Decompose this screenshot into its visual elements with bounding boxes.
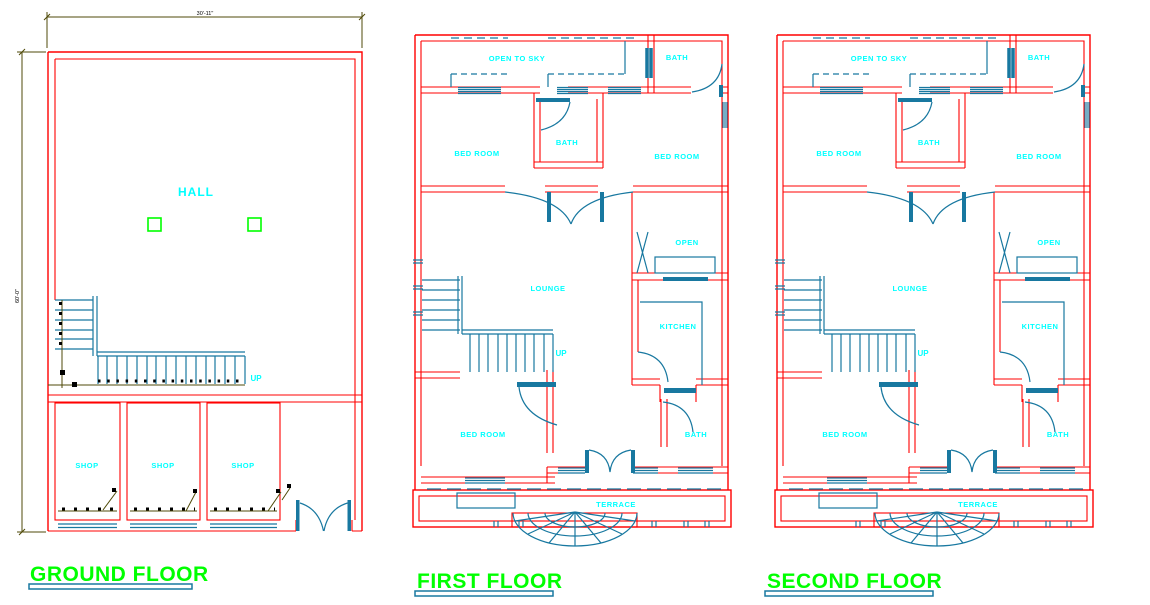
bath-mid-label: BATH (918, 138, 940, 147)
terrace-label: TERRACE (596, 500, 636, 509)
kitchen-label: KITCHEN (660, 322, 697, 331)
ground-floor-shop-steps (58, 524, 277, 528)
bed-bottom-label: BED ROOM (822, 430, 867, 439)
bath-bottom-label: BATH (1047, 430, 1069, 439)
ground-floor-entry-door (296, 500, 351, 531)
first-floor-plan: OPEN TO SKY BATH BED ROOM BATH BED ROOM … (413, 35, 731, 546)
lounge-label: LOUNGE (892, 284, 927, 293)
bed-right-label: BED ROOM (654, 152, 699, 161)
first-up-label: UP (555, 349, 567, 358)
bed-left-label: BED ROOM (816, 149, 861, 158)
first-floor-title-underline (415, 591, 553, 596)
ground-floor-walls (48, 52, 362, 531)
cad-canvas: 30'-11" 60'-0" HALL SHOP SHOP SHOP UP OP… (0, 0, 1150, 605)
bath-bottom-label: BATH (685, 430, 707, 439)
ground-floor-staircase (55, 296, 245, 384)
bath-top-label: BATH (1028, 53, 1050, 62)
hall-label: HALL (178, 185, 214, 199)
shop1-label: SHOP (75, 461, 98, 470)
shop3-label: SHOP (231, 461, 254, 470)
cad-viewport: 30'-11" 60'-0" HALL SHOP SHOP SHOP UP OP… (0, 0, 1150, 605)
ground-width-dimension: 30'-11" (197, 11, 214, 17)
second-up-label: UP (917, 349, 929, 358)
terrace-label: TERRACE (958, 500, 998, 509)
bed-left-label: BED ROOM (454, 149, 499, 158)
ground-floor-title-underline (29, 584, 192, 589)
second-floor-title: SECOND FLOOR (767, 570, 942, 593)
open-label: OPEN (675, 238, 698, 247)
lounge-label: LOUNGE (530, 284, 565, 293)
shop2-label: SHOP (151, 461, 174, 470)
plan-titles: GROUND FLOOR FIRST FLOOR SECOND FLOOR (29, 563, 942, 596)
open-to-sky-label: OPEN TO SKY (851, 54, 908, 63)
ground-up-label: UP (250, 374, 262, 383)
ground-floor-title: GROUND FLOOR (30, 563, 209, 586)
ground-height-dimension: 60'-0" (15, 289, 21, 303)
second-floor-title-underline (765, 591, 933, 596)
bed-right-label: BED ROOM (1016, 152, 1061, 161)
bed-bottom-label: BED ROOM (460, 430, 505, 439)
kitchen-label: KITCHEN (1022, 322, 1059, 331)
second-floor-plan: OPEN TO SKY BATH BED ROOM BATH BED ROOM … (775, 35, 1093, 546)
bath-mid-label: BATH (556, 138, 578, 147)
open-label: OPEN (1037, 238, 1060, 247)
ground-floor-columns (148, 218, 261, 231)
first-floor-title: FIRST FLOOR (417, 570, 563, 593)
bath-top-label: BATH (666, 53, 688, 62)
ground-floor-plan: 30'-11" 60'-0" HALL SHOP SHOP SHOP UP (15, 11, 365, 535)
ground-floor-dimensions: 30'-11" 60'-0" (15, 11, 365, 535)
ground-floor-labels: HALL SHOP SHOP SHOP UP (75, 185, 262, 470)
open-to-sky-label: OPEN TO SKY (489, 54, 546, 63)
